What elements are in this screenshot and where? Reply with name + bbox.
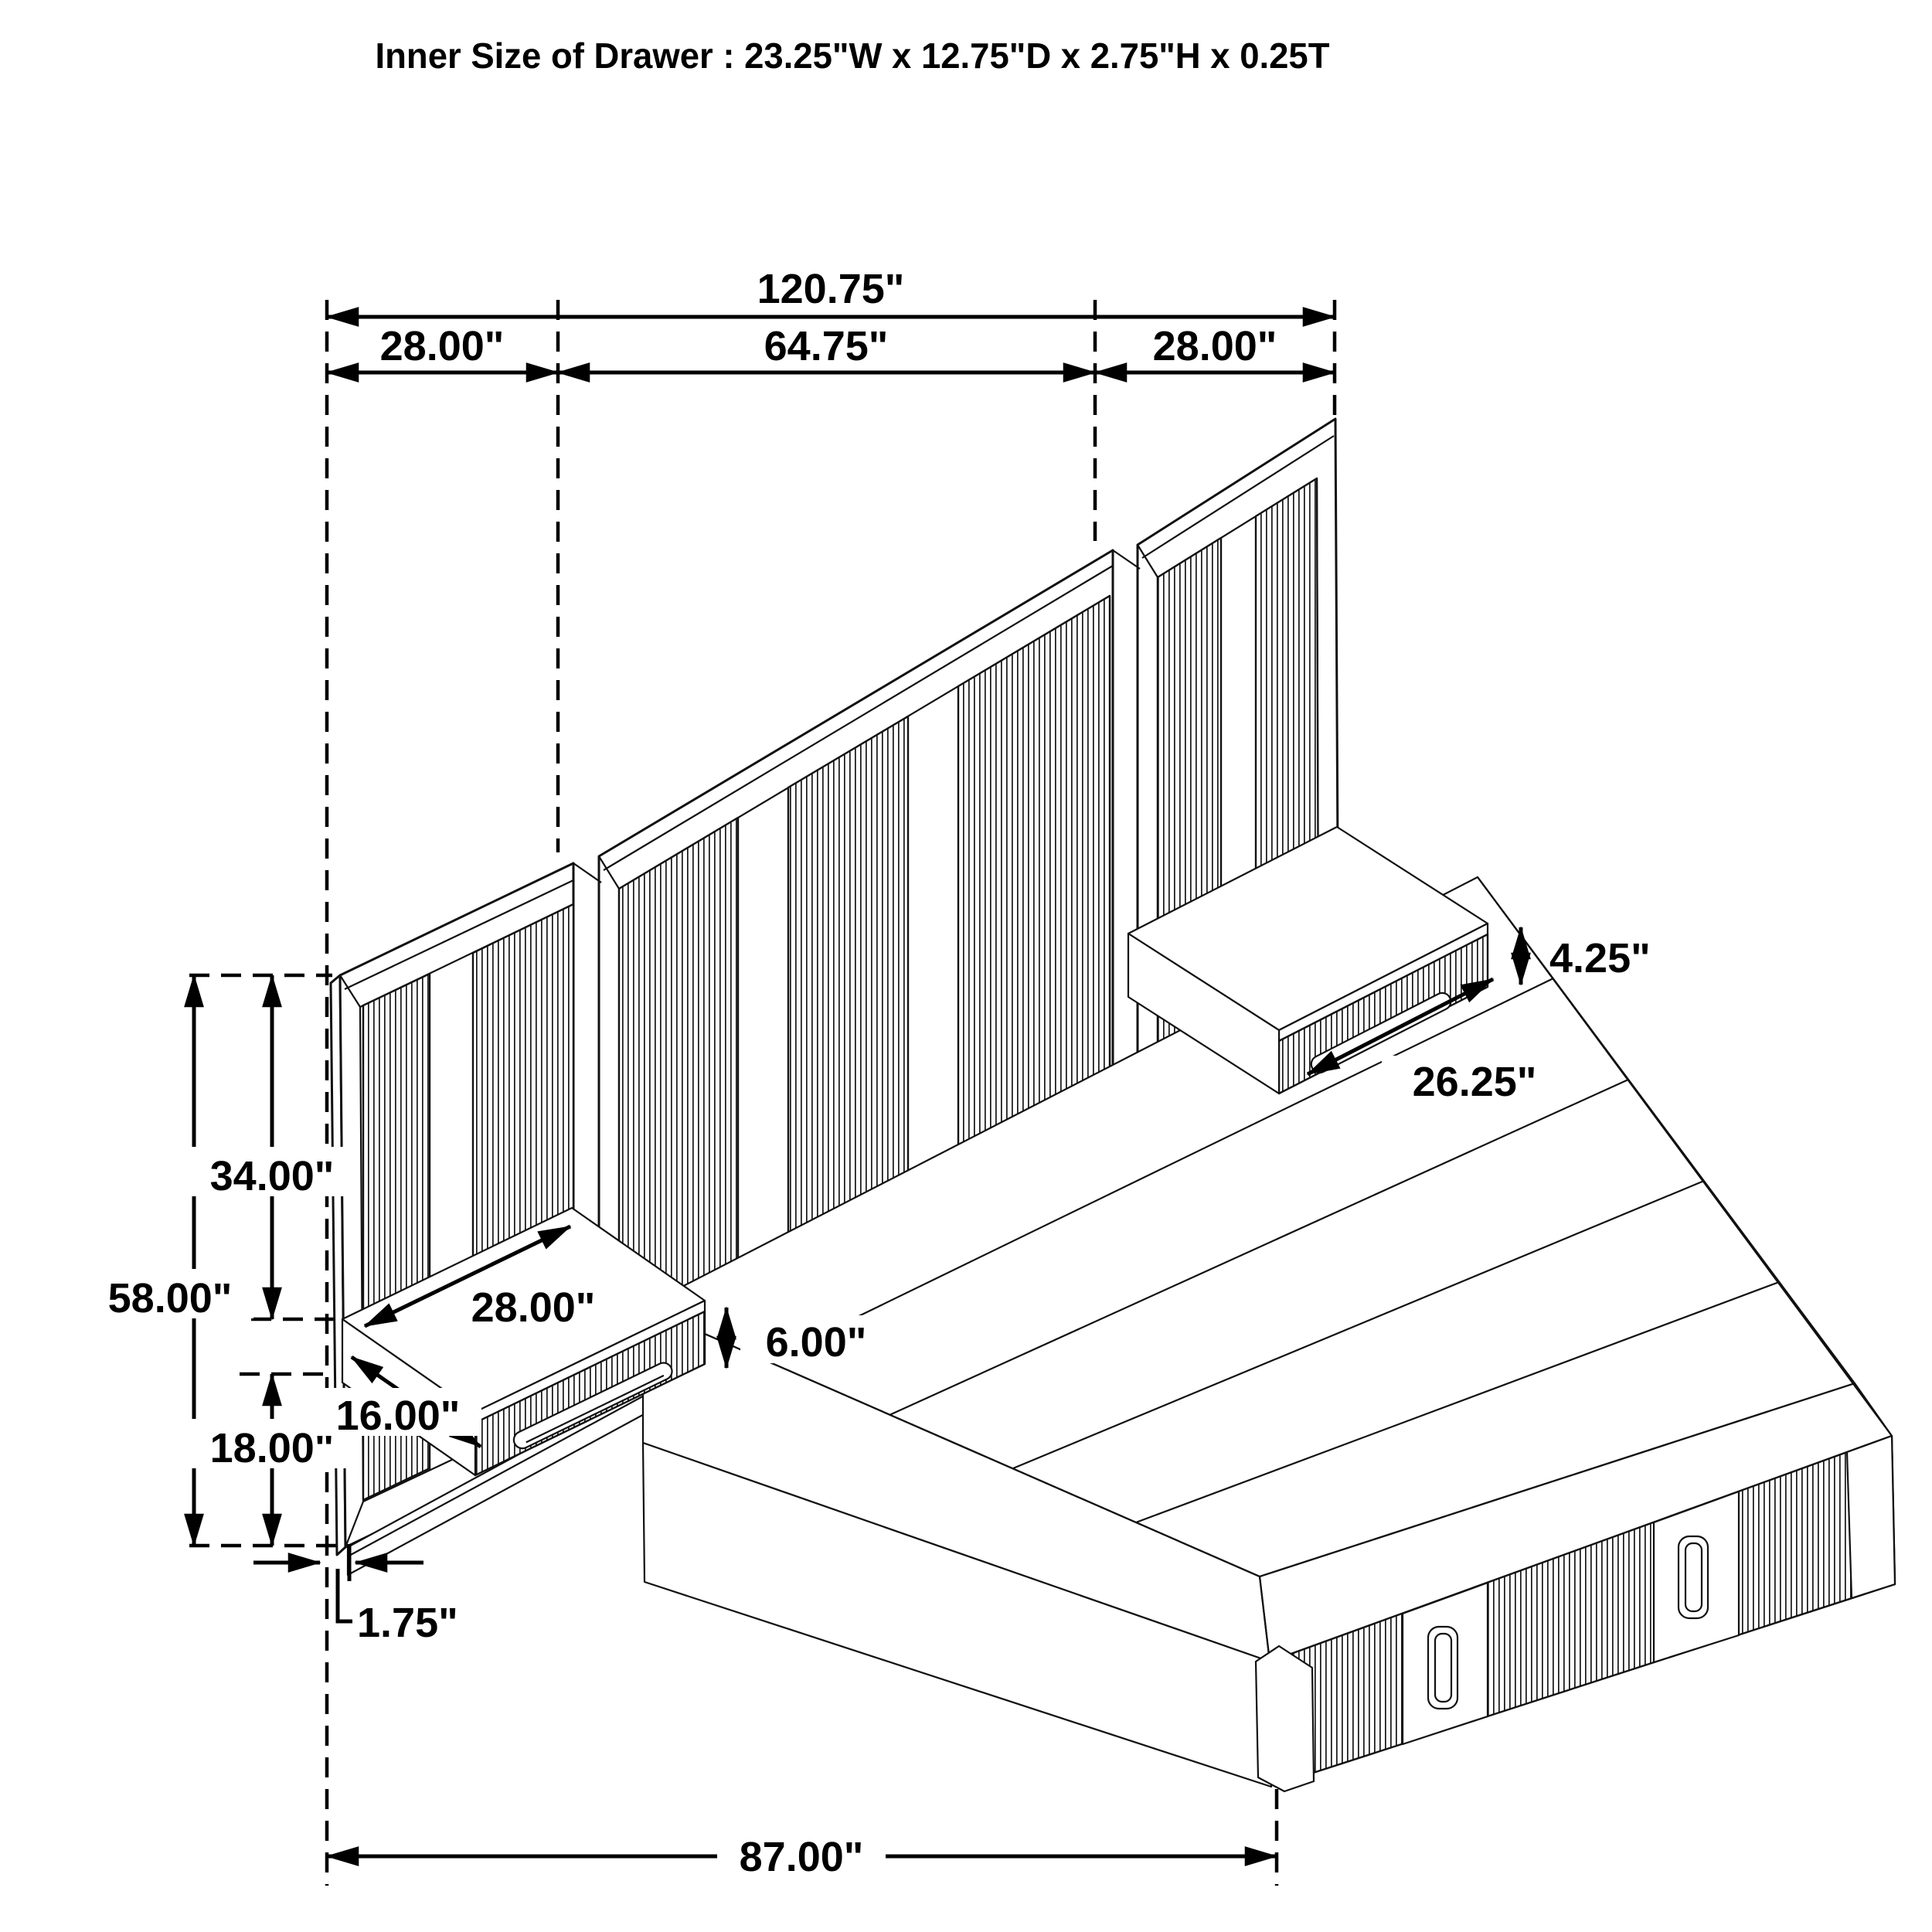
diagram-page: 120.75" 28.00" 64.75" 28.00" 58.00" 34.0…	[0, 0, 1932, 1932]
storage-drawer-handle-1	[1428, 1627, 1458, 1709]
dim-bed-length: 87.00"	[327, 1833, 1277, 1880]
left-nightstand-height-label: 6.00"	[766, 1319, 867, 1366]
bed-length-label: 87.00"	[740, 1834, 864, 1880]
page-title: Inner Size of Drawer : 23.25"W x 12.75"D…	[376, 36, 1330, 76]
panel-total-height-label: 58.00"	[108, 1275, 233, 1321]
right-nightstand-height-label: 4.25"	[1549, 935, 1651, 981]
center-panel-width-label: 64.75"	[764, 323, 889, 369]
left-nightstand-width-label: 28.00"	[471, 1284, 596, 1331]
left-panel-width-label: 28.00"	[380, 323, 505, 369]
dim-panel-widths: 28.00" 64.75" 28.00"	[327, 323, 1335, 372]
right-panel-width-label: 28.00"	[1153, 323, 1277, 369]
panel-thickness-label: 1.75"	[357, 1600, 458, 1646]
bed-corner-post	[1256, 1646, 1314, 1791]
storage-drawer-handle-2	[1679, 1536, 1708, 1618]
overall-width-label: 120.75"	[757, 266, 905, 312]
panel-above-nightstand-label: 34.00"	[210, 1153, 335, 1199]
dim-left-nightstand-height: 6.00"	[726, 1308, 892, 1368]
technical-drawing: 120.75" 28.00" 64.75" 28.00" 58.00" 34.0…	[0, 0, 1932, 1932]
left-nightstand-depth-label: 16.00"	[336, 1393, 461, 1439]
right-nightstand-width-label: 26.25"	[1413, 1059, 1537, 1105]
dim-overall-width: 120.75"	[327, 266, 1335, 317]
